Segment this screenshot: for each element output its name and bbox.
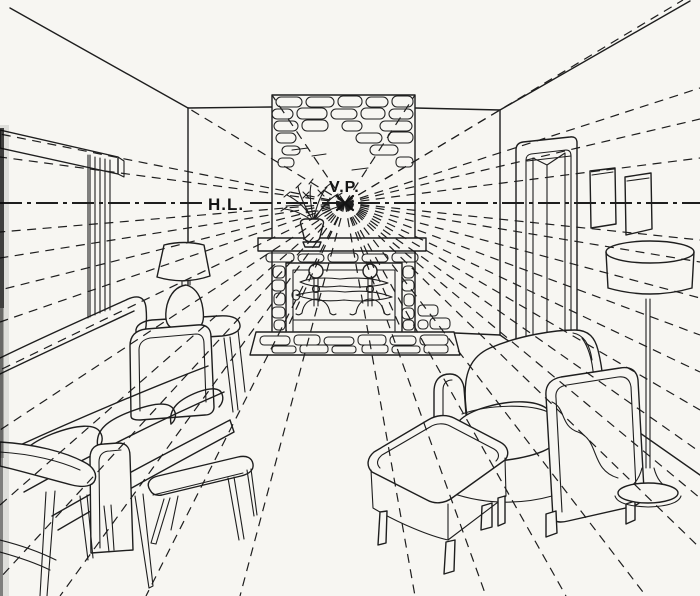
horizon-line-label: H.L.	[208, 195, 244, 214]
bench-top	[148, 456, 253, 495]
hearth	[250, 332, 460, 355]
ottoman	[368, 416, 508, 574]
sofa-far-arm	[130, 325, 214, 420]
table-lamp	[157, 228, 210, 329]
ceiling-corner-left	[10, 8, 188, 108]
sofa-back-inner	[0, 311, 134, 374]
round-side-table	[0, 442, 96, 596]
back-wall-top-right	[415, 108, 500, 110]
plant-pot-foot	[303, 242, 321, 247]
andiron-left	[296, 264, 336, 315]
perspective-drawing: H.L. V.P.	[0, 0, 700, 596]
table-lamp-body	[166, 285, 204, 329]
sofa-back-outer	[0, 297, 146, 358]
mantel-shelf	[258, 238, 426, 251]
round-table-top	[0, 442, 96, 486]
mantel-stone-band	[266, 253, 418, 262]
table-lamp-shade	[157, 243, 210, 281]
floor-lamp-pole	[646, 299, 650, 468]
picture-frame	[590, 168, 616, 228]
round-table-legs	[40, 491, 93, 596]
window-mullions	[88, 155, 110, 318]
sofa-front-corner	[90, 443, 133, 553]
sofa	[0, 297, 234, 588]
log-top	[300, 278, 388, 287]
back-wall-floor-line	[455, 333, 500, 335]
floor-lamp-shade-top	[606, 241, 694, 263]
floor-lamp-base	[618, 483, 678, 503]
end-table-legs	[224, 330, 245, 412]
vanishing-point-label: V.P.	[329, 179, 360, 196]
window	[0, 130, 124, 318]
picture-frames	[590, 168, 652, 235]
back-wall-top-left	[188, 107, 272, 108]
perspective-drawing-page: H.L. V.P.	[0, 0, 700, 596]
ceiling-corner-right	[500, 1, 690, 110]
page-edge-shadow	[0, 125, 9, 596]
